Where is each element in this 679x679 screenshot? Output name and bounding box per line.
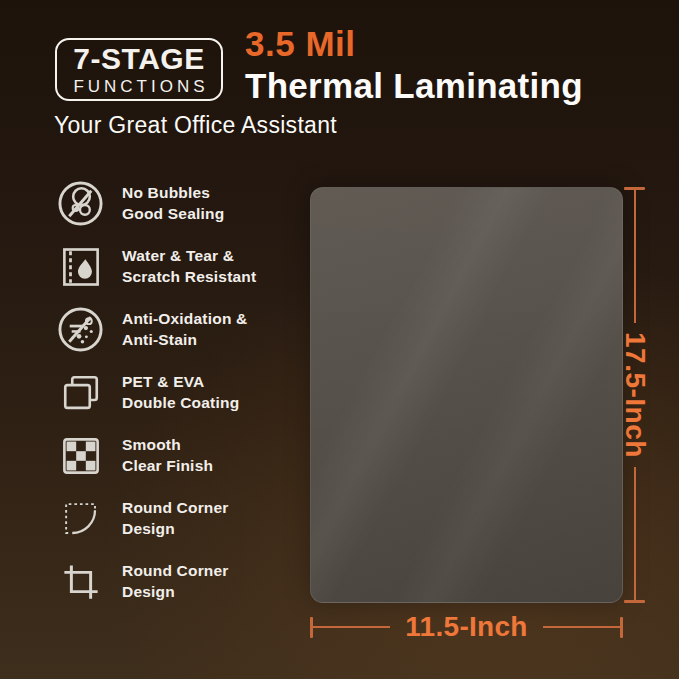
feature-label: PET & EVA Double Coating [122,372,239,414]
feature-round-corner-crop: Round Corner Design [57,558,256,605]
dimension-line-right [543,626,620,628]
feature-line2: Scratch Resistant [122,267,256,288]
feature-line1: Anti-Oxidation & [122,309,247,330]
round-corner-crop-icon [57,558,104,605]
feature-line2: Double Coating [122,393,239,414]
page-title: 3.5 Mil Thermal Laminating [245,26,583,103]
water-tear-icon [57,243,104,290]
product-infographic: 7-STAGE FUNCTIONS 3.5 Mil Thermal Lamina… [0,0,679,679]
feature-line1: Water & Tear & [122,246,256,267]
feature-line1: Smooth [122,435,213,456]
feature-label: Water & Tear & Scratch Resistant [122,246,256,288]
dimension-cap-right [620,617,623,638]
feature-line2: Design [122,519,229,540]
feature-round-corner-dashed: Round Corner Design [57,495,256,542]
feature-label: Anti-Oxidation & Anti-Stain [122,309,247,351]
dimension-cap-bottom [624,600,645,603]
round-corner-dashed-icon [57,495,104,542]
dimension-line-lower [634,467,636,600]
feature-label: Round Corner Design [122,561,229,603]
feature-smooth-finish: Smooth Clear Finish [57,432,256,479]
height-dimension-label: 17.5-Inch [621,323,649,467]
dimension-line-upper [634,190,636,323]
width-dimension-label: 11.5-Inch [405,613,528,641]
feature-line2: Clear Finish [122,456,213,477]
stage-functions-badge: 7-STAGE FUNCTIONS [55,38,223,101]
feature-double-coating: PET & EVA Double Coating [57,369,256,416]
anti-oxidation-icon [57,306,104,353]
width-dimension: 11.5-Inch [310,612,623,642]
feature-line2: Anti-Stain [122,330,247,351]
feature-label: Round Corner Design [122,498,229,540]
laminating-sheet-image [310,187,623,603]
tagline: Your Great Office Assistant [54,112,337,139]
title-thermal-laminating: Thermal Laminating [245,68,583,103]
badge-title: 7-STAGE [73,44,204,74]
feature-label: Smooth Clear Finish [122,435,213,477]
feature-anti-oxidation: Anti-Oxidation & Anti-Stain [57,306,256,353]
double-coating-icon [57,369,104,416]
smooth-finish-icon [57,432,104,479]
feature-line1: Round Corner [122,561,229,582]
feature-line1: PET & EVA [122,372,239,393]
feature-line1: Round Corner [122,498,229,519]
feature-water-tear: Water & Tear & Scratch Resistant [57,243,256,290]
feature-line1: No Bubbles [122,183,224,204]
dimension-line-left [313,626,390,628]
feature-no-bubbles: No Bubbles Good Sealing [57,180,256,227]
feature-line2: Design [122,582,229,603]
feature-list: No Bubbles Good Sealing Water & Tear & S… [57,180,256,605]
badge-subtitle: FUNCTIONS [69,78,208,95]
feature-line2: Good Sealing [122,204,224,225]
no-bubbles-icon [57,180,104,227]
title-mil-thickness: 3.5 Mil [245,26,583,61]
height-dimension: 17.5-Inch [616,187,653,603]
feature-label: No Bubbles Good Sealing [122,183,224,225]
